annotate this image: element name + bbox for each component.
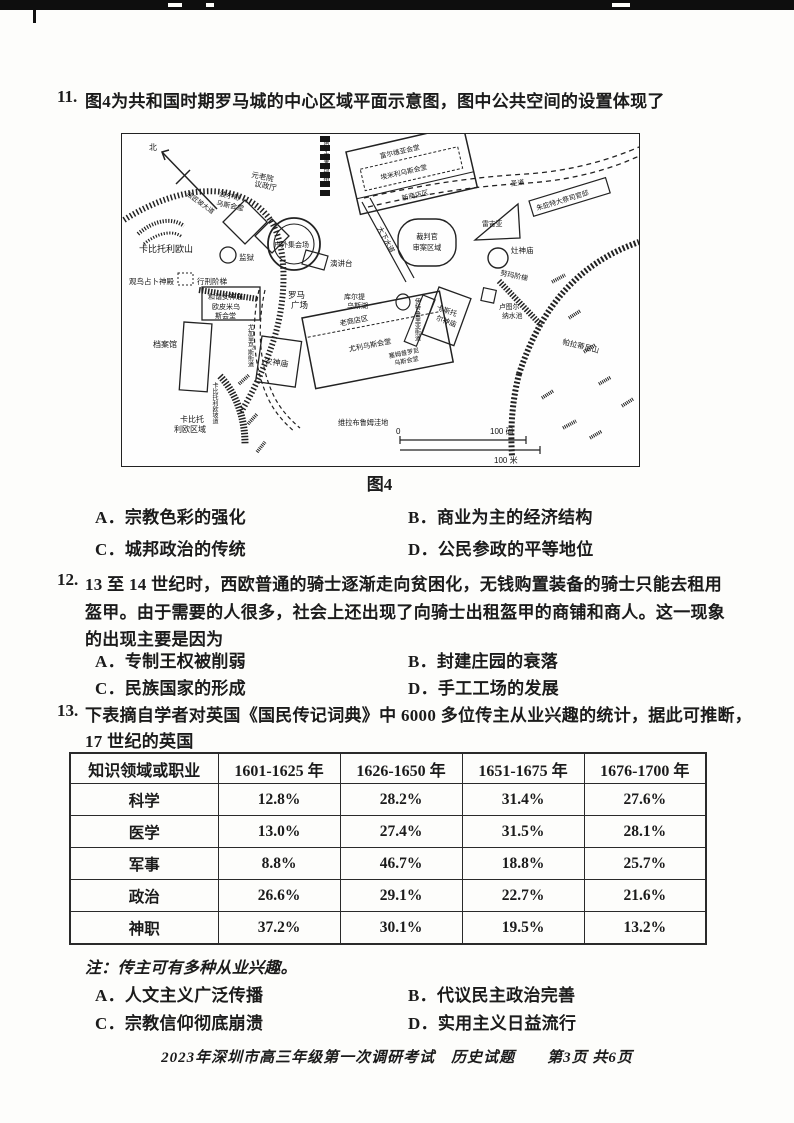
table-row: 军事 8.8% 46.7% 18.8% 25.7% — [70, 848, 706, 880]
map-label-palatine: 帕拉蒂尼山 — [562, 336, 601, 355]
table-cell: 医学 — [70, 816, 218, 848]
map-label-basilica-fulvia: 富尔维亚会堂 — [379, 142, 421, 160]
pontifex-residence: 朱庇特大祭司官邸 — [529, 178, 610, 217]
juturna-pool-shape — [481, 288, 496, 303]
figure-caption: 图4 — [121, 470, 638, 495]
table-row: 神职 37.2% 30.1% 19.5% 13.2% — [70, 912, 706, 945]
page-footer: 2023年深圳市高三年级第一次调研考试 历史试题 第3页 共6页 — [0, 1046, 794, 1067]
q13-table-note: 注：传主可有多种从业兴趣。 — [85, 954, 297, 978]
table-cell: 30.1% — [340, 912, 462, 945]
map-label-rostra: 演讲台 — [330, 258, 353, 268]
basilica-julia-block: 老商店区 尤利乌斯会堂 塞姆普罗尼 乌斯会堂 — [302, 291, 453, 388]
north-arrow-icon: 北 — [149, 143, 217, 209]
q13-number: 13. — [57, 701, 78, 721]
map-label-roman-forum-2: 广场 — [291, 300, 308, 310]
map-label-regia: 雷吉亚 — [482, 220, 503, 228]
table-cell: 12.8% — [218, 784, 340, 816]
map-label-praetor-2: 审案区域 — [413, 243, 442, 252]
table-cell: 21.6% — [584, 880, 706, 912]
table-header: 知识领域或职业 — [70, 753, 218, 784]
table-cell: 13.2% — [584, 912, 706, 945]
vesta-temple-shape — [488, 248, 508, 268]
table-cell: 29.1% — [340, 880, 462, 912]
table-cell: 31.4% — [462, 784, 584, 816]
open-air-assembly: 户外集会场 — [268, 218, 320, 270]
map-label-new-shops: 新商店区 — [401, 188, 430, 203]
q12-number: 12. — [57, 570, 78, 590]
table-cell: 27.4% — [340, 816, 462, 848]
q13-stem-line1: 下表摘自学者对英国《国民传记词典》中 6000 多位传主从业兴趣的统计，据此可推… — [85, 701, 752, 726]
q11-option-b: B．商业为主的经济结构 — [408, 503, 593, 528]
q11-stem: 图4为共和国时期罗马城的中心区域平面示意图，图中公共空间的设置体现了 — [85, 87, 665, 112]
q12-stem-line1: 13 至 14 世纪时，西欧普通的骑士逐渐走向贫困化，无钱购置装备的骑士只能去租… — [85, 570, 722, 595]
q12-option-c: C．民族国家的形成 — [95, 674, 246, 699]
augur-temple-shape — [178, 273, 193, 285]
map-label-archives: 档案馆 — [153, 339, 177, 349]
table-cell: 13.0% — [218, 816, 340, 848]
map-label-north: 北 — [149, 143, 157, 152]
scan-edge-artifact — [0, 0, 794, 10]
capitoline-slope-road — [220, 376, 245, 444]
table-cell: 神职 — [70, 912, 218, 945]
map-label-velabrum: 维拉布鲁姆洼地 — [338, 418, 388, 427]
castor-temple: 卡斯托 尔神庙 — [422, 287, 471, 346]
map-label-basilica-julia: 尤利乌斯会堂 — [348, 336, 392, 353]
map-label-pontifex-house: 朱庇特大祭司官邸 — [535, 188, 590, 213]
q13-option-c: C．宗教信仰彻底崩溃 — [95, 1009, 263, 1034]
table-header-row: 知识领域或职业 1601-1625 年 1626-1650 年 1651-167… — [70, 753, 706, 784]
map-label-juturna-2: 纳水池 — [502, 311, 523, 320]
map-label-assembly: 户外集会场 — [274, 240, 309, 249]
map-scale-zero: 0 — [396, 427, 401, 436]
map-label-via-sacra: 圣道 — [510, 177, 525, 188]
table-cell: 27.6% — [584, 784, 706, 816]
q13-option-a: A．人文主义广泛传播 — [95, 981, 263, 1006]
scan-tick-artifact — [33, 10, 36, 23]
table-row: 政治 26.6% 29.1% 22.7% 21.6% — [70, 880, 706, 912]
table-cell: 19.5% — [462, 912, 584, 945]
table-cell: 25.7% — [584, 848, 706, 880]
table-header: 1601-1625 年 — [218, 753, 340, 784]
map-label-concordia-2: 欧皮米乌 — [212, 302, 240, 311]
basilica-aemilia-block: 富尔维亚会堂 埃米利乌斯会堂 新商店区 — [346, 134, 477, 214]
map-label-saturn: 农神庙 — [264, 356, 289, 369]
figure-4-roman-forum-map: 北 卡比托利欧山 银匠坡大道 波尔奇 乌斯会堂 元老院 议政厅 — [121, 133, 640, 467]
table-cell: 28.1% — [584, 816, 706, 848]
q13-stem-line2: 17 世纪的英国 — [85, 727, 194, 752]
concordia-temple: 和谐女神庙 欧皮米乌 斯会堂 — [202, 287, 260, 320]
map-label-concordia-1: 和谐女神庙 — [208, 292, 243, 301]
map-label-augur-temple: 观鸟占卜神殿 — [129, 276, 174, 286]
table-cell: 军事 — [70, 848, 218, 880]
exam-page: 11. 图4为共和国时期罗马城的中心区域平面示意图，图中公共空间的设置体现了 北… — [0, 0, 794, 1123]
map-label-argiletum-street: 阿尔吉莱图姆街 — [322, 139, 329, 183]
map-label-jugarius-street: 尤加里乌斯街道 — [247, 323, 254, 368]
map-label-capitoline-slope: 卡比托利欧坡道 — [211, 381, 218, 425]
map-label-concordia-3: 斯会堂 — [215, 311, 236, 320]
map-label-numa-stairs: 努玛阶梯 — [500, 268, 529, 283]
table-cell: 政治 — [70, 880, 218, 912]
map-label-capitoline-hill: 卡比托利欧山 — [139, 243, 193, 254]
map-label-basilica-aemilia: 埃米利乌斯会堂 — [380, 162, 429, 182]
map-scale-meters: 100 米 — [494, 455, 518, 465]
q11-option-d: D．公民参政的平等地位 — [408, 535, 594, 560]
map-label-execution-stairs: 行刑阶梯 — [197, 276, 227, 286]
map-label-capitoline-area-2: 利欧区域 — [174, 424, 206, 434]
palatine-hill: 帕拉蒂尼山 — [511, 242, 639, 456]
table-cell: 科学 — [70, 784, 218, 816]
prison-shape — [220, 247, 236, 263]
scan-slit — [612, 3, 630, 7]
map-label-capitoline-area-1: 卡比托 — [180, 414, 204, 424]
table-cell: 46.7% — [340, 848, 462, 880]
cloaca-maxima-road: 大下水道 — [362, 198, 414, 282]
q12-stem-line2: 盔甲。由于需要的人很多，社会上还出现了向骑士出租盔甲的商铺和商人。这一现象 — [85, 598, 725, 623]
map-label-vesta: 灶神庙 — [511, 245, 534, 255]
q11-number: 11. — [57, 87, 77, 107]
q13-option-d: D．实用主义日益流行 — [408, 1009, 576, 1034]
archives-building — [179, 322, 212, 392]
table-cell: 31.5% — [462, 816, 584, 848]
table-cell: 22.7% — [462, 880, 584, 912]
q11-option-a: A．宗教色彩的强化 — [95, 503, 246, 528]
table-row: 科学 12.8% 28.2% 31.4% 27.6% — [70, 784, 706, 816]
map-label-lacus-curtius-1: 库尔提 — [344, 292, 365, 301]
table-header: 1651-1675 年 — [462, 753, 584, 784]
q12-option-b: B．封建庄园的衰落 — [408, 647, 558, 672]
q12-option-d: D．手工工场的发展 — [408, 674, 559, 699]
scan-slit — [206, 3, 214, 7]
lacus-curtius-shape — [396, 294, 410, 310]
table-row: 医学 13.0% 27.4% 31.5% 28.1% — [70, 816, 706, 848]
map-label-praetor-1: 裁判官 — [416, 232, 438, 241]
table-cell: 8.8% — [218, 848, 340, 880]
table-cell: 37.2% — [218, 912, 340, 945]
q12-option-a: A．专制王权被削弱 — [95, 647, 246, 672]
map-scale-bar: 0 100 码 100 米 — [396, 427, 540, 465]
table-cell: 28.2% — [340, 784, 462, 816]
q13-option-b: B．代议民主政治完善 — [408, 981, 575, 1006]
map-label-tuscus-street: 伊特鲁里亚街道 — [414, 297, 421, 342]
map-label-old-shops: 老商店区 — [339, 313, 369, 327]
table-cell: 18.8% — [462, 848, 584, 880]
q11-option-c: C．城邦政治的传统 — [95, 535, 246, 560]
roman-forum-map-svg: 北 卡比托利欧山 银匠坡大道 波尔奇 乌斯会堂 元老院 议政厅 — [122, 134, 639, 466]
map-label-roman-forum-1: 罗马 — [288, 290, 305, 300]
scan-slit — [168, 3, 182, 7]
table-cell: 26.6% — [218, 880, 340, 912]
q13-table: 知识领域或职业 1601-1625 年 1626-1650 年 1651-167… — [69, 752, 707, 945]
table-header: 1676-1700 年 — [584, 753, 706, 784]
map-label-prison: 监狱 — [239, 252, 254, 262]
table-header: 1626-1650 年 — [340, 753, 462, 784]
